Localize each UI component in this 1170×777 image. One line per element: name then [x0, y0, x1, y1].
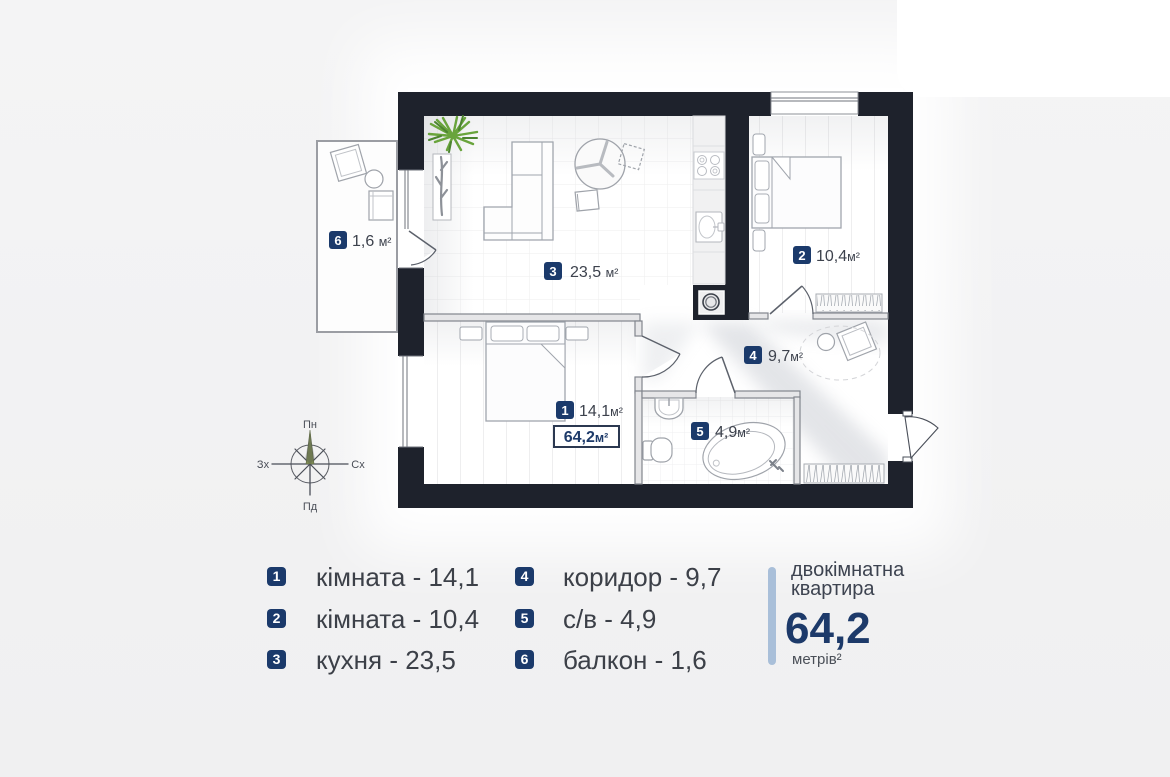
- svg-text:1: 1: [561, 403, 568, 418]
- svg-text:6: 6: [334, 233, 341, 248]
- svg-text:5: 5: [696, 424, 703, 439]
- svg-text:1,6 м²: 1,6 м²: [352, 233, 391, 250]
- svg-text:14,1м²: 14,1м²: [579, 403, 623, 420]
- svg-text:Зх: Зх: [257, 459, 270, 471]
- svg-text:Пд: Пд: [303, 501, 318, 513]
- svg-text:64,2м²: 64,2м²: [564, 429, 609, 446]
- svg-text:4,9м²: 4,9м²: [715, 424, 750, 441]
- svg-text:Пн: Пн: [303, 419, 317, 431]
- svg-text:10,4м²: 10,4м²: [816, 248, 860, 265]
- svg-text:2: 2: [798, 248, 805, 263]
- svg-text:4: 4: [749, 348, 757, 363]
- svg-text:Сх: Сх: [351, 459, 365, 471]
- svg-text:3: 3: [549, 264, 556, 279]
- svg-text:9,7м²: 9,7м²: [768, 348, 803, 365]
- svg-text:23,5 м²: 23,5 м²: [570, 264, 618, 281]
